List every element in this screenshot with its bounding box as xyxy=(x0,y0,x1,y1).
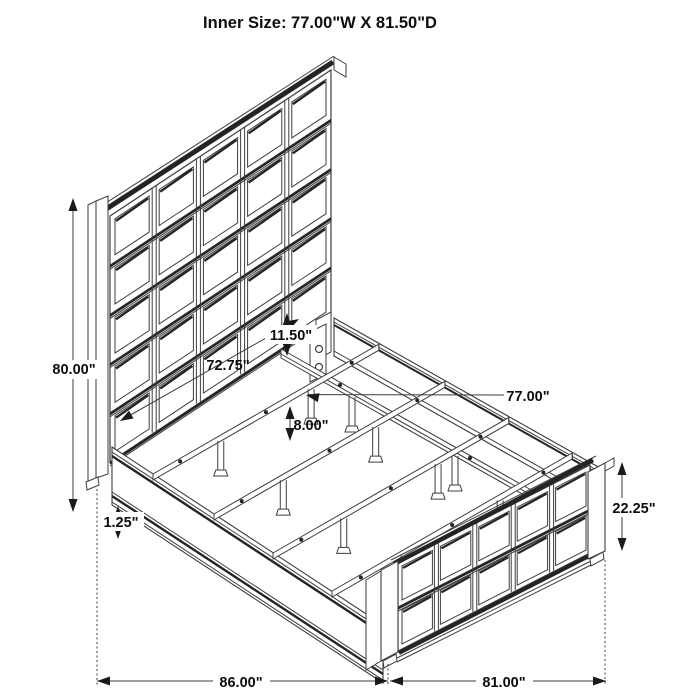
dim-slat-leg-height-label: 8.00" xyxy=(293,418,328,434)
dim-inner-width-label: 77.00" xyxy=(506,389,549,405)
dim-overall-height-label: 80.00" xyxy=(52,362,95,378)
inner-size-title: Inner Size: 77.00"W X 81.50"D xyxy=(203,14,437,32)
dim-side-rail-height-label: 11.50" xyxy=(270,328,312,344)
bed-dimension-diagram: Inner Size: 77.00"W X 81.50"D 80.00" 72.… xyxy=(0,0,700,700)
dim-overall-depth-label: 86.00" xyxy=(219,675,262,691)
footboard-panel xyxy=(366,456,614,670)
dim-footboard-width-label: 81.00" xyxy=(482,675,525,691)
dim-footboard-height-label: 22.25" xyxy=(612,501,655,517)
diagram-page: Inner Size: 77.00"W X 81.50"D 80.00" 72.… xyxy=(0,0,700,700)
dim-rail-inner-length-label: 72.75" xyxy=(206,358,249,374)
dim-rail-lip-thickness-label: 1.25" xyxy=(103,515,138,531)
